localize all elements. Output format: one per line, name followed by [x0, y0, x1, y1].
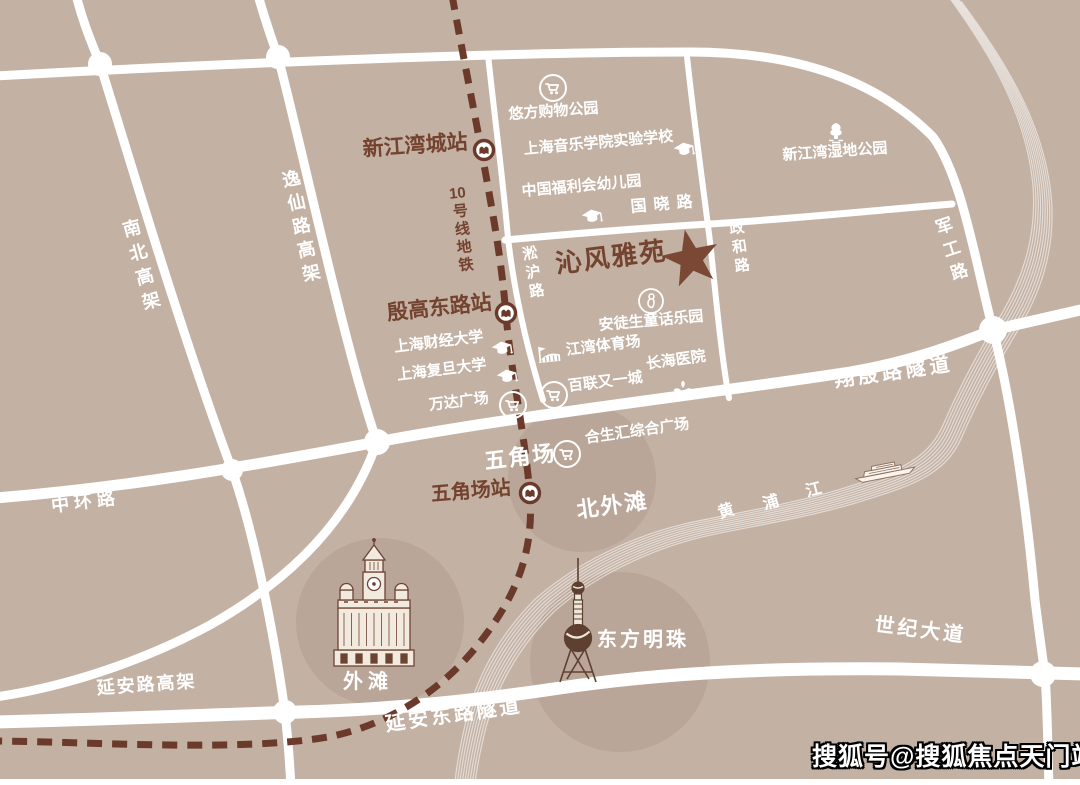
area-label-waitan: 外滩 [343, 671, 393, 694]
metro-station-icon-wujiaochang [521, 484, 540, 503]
stadium-icon-jiangwan [537, 345, 561, 363]
bottom-edge-strip [0, 779, 1080, 785]
shopping-icon-bailian [541, 382, 567, 408]
andersen-park-icon [639, 289, 663, 313]
watermark-text: 搜狐号@搜狐焦点天门站 [812, 743, 1080, 772]
map-canvas: 悠方购物公园 上海音乐学院实验学校 中国福利会幼儿园 新江湾湿地公园 安徒生童话… [0, 0, 1080, 785]
metro-station-icon-yingaodonglu [497, 304, 516, 323]
shopping-icon-youfang [540, 75, 566, 101]
metro-line-number: 10 [448, 184, 466, 203]
area-label-dongfangmingzhu: 东方明珠 [597, 629, 689, 652]
school-icon-kindergarten [581, 208, 603, 224]
school-icon-music-school [673, 141, 695, 157]
metro-station-icon-xinjiangwancheng [475, 141, 494, 160]
park-icon-wetland [829, 123, 843, 143]
